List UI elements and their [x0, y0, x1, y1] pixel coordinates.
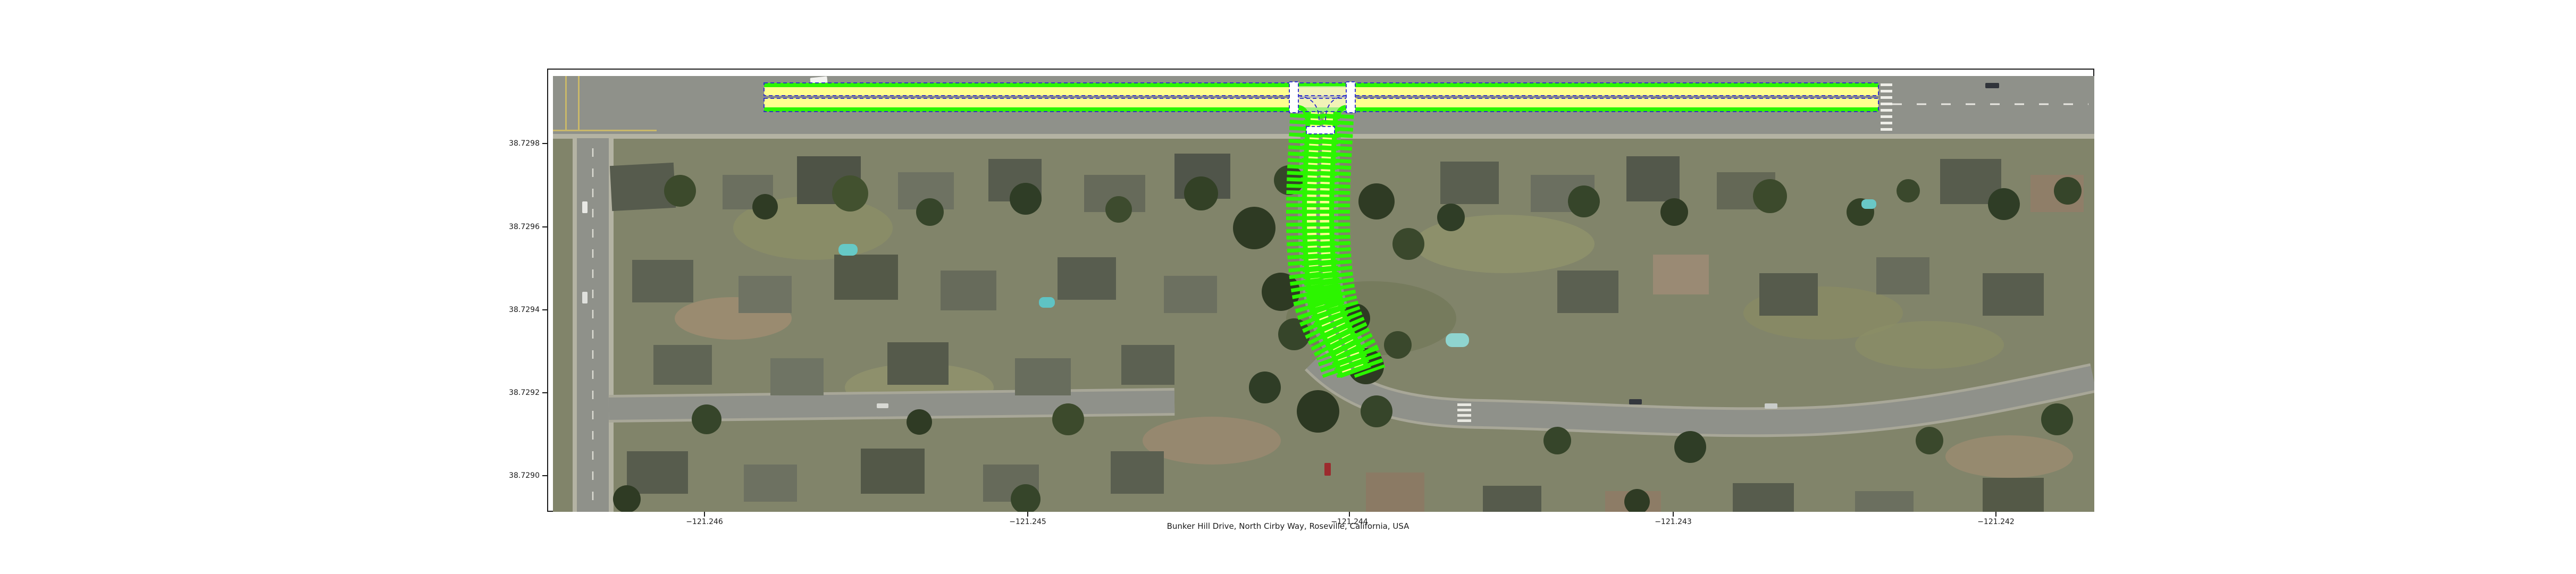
- y-tick-label: 38.7292: [492, 389, 540, 396]
- x-tickmark: [1995, 512, 1996, 517]
- crosswalk-south: [1306, 126, 1335, 134]
- x-tickmark: [1027, 512, 1028, 517]
- x-tickmark: [1673, 512, 1674, 517]
- crosswalk-east: [1346, 82, 1355, 113]
- aerial-map-canvas: [547, 69, 2094, 512]
- matplotlib-figure: 38.7298 38.7296 38.7294 38.7292 38.7290 …: [0, 0, 2576, 574]
- y-tickmark: [542, 226, 547, 227]
- intersection-area: [1298, 86, 1346, 112]
- y-tick-label: 38.7296: [492, 223, 540, 231]
- crosswalk-west: [1289, 82, 1298, 113]
- figure-caption: Bunker Hill Drive, North Cirby Way, Rose…: [0, 522, 2576, 530]
- y-tick-label: 38.7298: [492, 140, 540, 147]
- x-tickmark: [1349, 512, 1350, 517]
- y-tickmark: [542, 143, 547, 144]
- map-plot-area: [547, 69, 2094, 512]
- y-tickmark: [542, 475, 547, 476]
- y-tickmark: [542, 309, 547, 310]
- y-tick-label: 38.7290: [492, 472, 540, 479]
- y-tickmark: [542, 392, 547, 393]
- x-tickmark: [704, 512, 705, 517]
- y-tick-label: 38.7294: [492, 306, 540, 314]
